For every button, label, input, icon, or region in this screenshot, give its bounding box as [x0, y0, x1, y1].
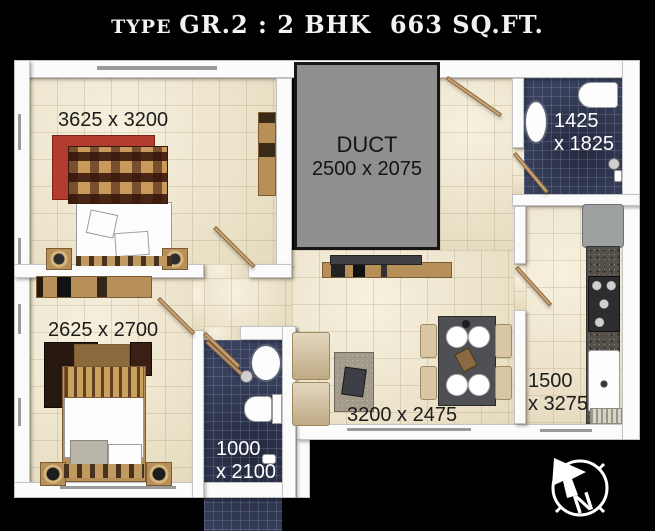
window-left-4	[18, 398, 21, 426]
bedroom2-bed-blanket	[64, 366, 144, 398]
living-dimension: 3200 x 2475	[347, 404, 457, 427]
floor-plan-page: TYPE GR.2 : 2 BHK 663 SQ.FT.	[0, 0, 655, 531]
bedroom1-wardrobe	[258, 112, 276, 196]
bathroom1-dimension-line1: 1425	[554, 110, 614, 133]
plan-title-main: GR.2 : 2 BHK 663 SQ.FT.	[179, 10, 544, 39]
bedroom1-nightstand-left	[46, 248, 72, 270]
bedroom2-speaker-right	[146, 462, 172, 486]
bathroom2-washbasin	[250, 344, 282, 382]
bedroom1-bed-foot	[76, 256, 172, 266]
bathroom2-dimension-line2: x 2100	[216, 461, 276, 484]
window-top-bedroom1	[97, 66, 217, 70]
bedroom1-dimension: 3625 x 3200	[58, 109, 168, 132]
kitchen-dimension: 1500 x 3275	[528, 370, 588, 416]
window-bottom-bedroom2	[60, 486, 176, 489]
kitchen-dimension-line2: x 3275	[528, 393, 588, 416]
bedroom2-desk	[36, 276, 152, 298]
wall-right	[622, 60, 640, 440]
wall-bedroom2-right	[192, 330, 204, 498]
bathroom1-toilet	[578, 82, 618, 108]
dining-decor-dot	[462, 320, 470, 328]
wall-kitchen-left-lower	[514, 310, 526, 424]
tv-panel	[330, 255, 422, 265]
window-bottom-living	[347, 428, 471, 431]
bathroom2-dimension: 1000 x 2100	[216, 438, 276, 484]
window-bottom-kitchen	[540, 429, 592, 432]
window-left-3	[18, 304, 21, 334]
dining-plate-1	[446, 326, 468, 348]
wall-bedroom1-right	[276, 78, 292, 266]
wall-left	[14, 60, 30, 498]
plan-title-prefix: TYPE	[111, 16, 179, 38]
bathroom2-toilet-tank	[272, 394, 282, 424]
wall-kitchen-left-upper	[514, 206, 526, 264]
bedroom2-door-opening	[192, 278, 204, 330]
bedroom1-bed-blanket	[68, 146, 168, 204]
bathroom1-washbasin	[524, 100, 548, 144]
bathroom2-toilet	[244, 396, 272, 422]
duct-label: DUCT	[336, 132, 397, 158]
dining-plate-3	[446, 374, 468, 396]
bathroom1-dimension: 1425 x 1825	[554, 110, 614, 156]
window-left-1	[18, 114, 21, 150]
bedroom2-speaker-left	[40, 462, 66, 486]
bathroom1-dimension-line2: x 1825	[554, 133, 614, 156]
plan-title: TYPE GR.2 : 2 BHK 663 SQ.FT.	[0, 10, 655, 39]
dining-chair-1	[420, 324, 437, 358]
dining-plate-2	[468, 326, 490, 348]
kitchen-dimension-line1: 1500	[528, 370, 588, 393]
bathroom2-shower-head	[240, 370, 253, 383]
kitchen-doormat	[590, 408, 622, 424]
dining-chair-2	[420, 366, 437, 400]
floor-plan: DUCT 2500 x 2075 3625 x 3200 2625 x 2700	[10, 56, 650, 506]
dining-plate-4	[468, 374, 490, 396]
hall-corridor-floor	[204, 278, 292, 326]
armchair-2	[292, 382, 330, 426]
dining-chair-3	[495, 324, 512, 358]
window-left-2	[18, 238, 21, 264]
bedroom1-door-opening	[204, 264, 248, 278]
duct-shaft: DUCT 2500 x 2075	[294, 62, 440, 250]
kitchen-sink	[588, 350, 620, 412]
coffee-table-decor	[341, 367, 367, 398]
duct-dimension: 2500 x 2075	[312, 158, 422, 181]
bedroom1-pillow-2	[114, 231, 150, 257]
armchair-1	[292, 332, 330, 380]
compass-icon: N	[538, 446, 622, 530]
bathroom2-dimension-line1: 1000	[216, 438, 276, 461]
wall-bathroom1-left	[512, 78, 524, 148]
bedroom2-dimension: 2625 x 2700	[48, 319, 158, 342]
bedroom2-bed-foot	[64, 464, 144, 478]
bathroom1-shower-head	[608, 158, 620, 170]
bathroom1-fitting	[614, 170, 622, 182]
kitchen-stove	[588, 276, 620, 332]
kitchen-fridge	[582, 204, 624, 248]
dining-chair-4	[495, 366, 512, 400]
